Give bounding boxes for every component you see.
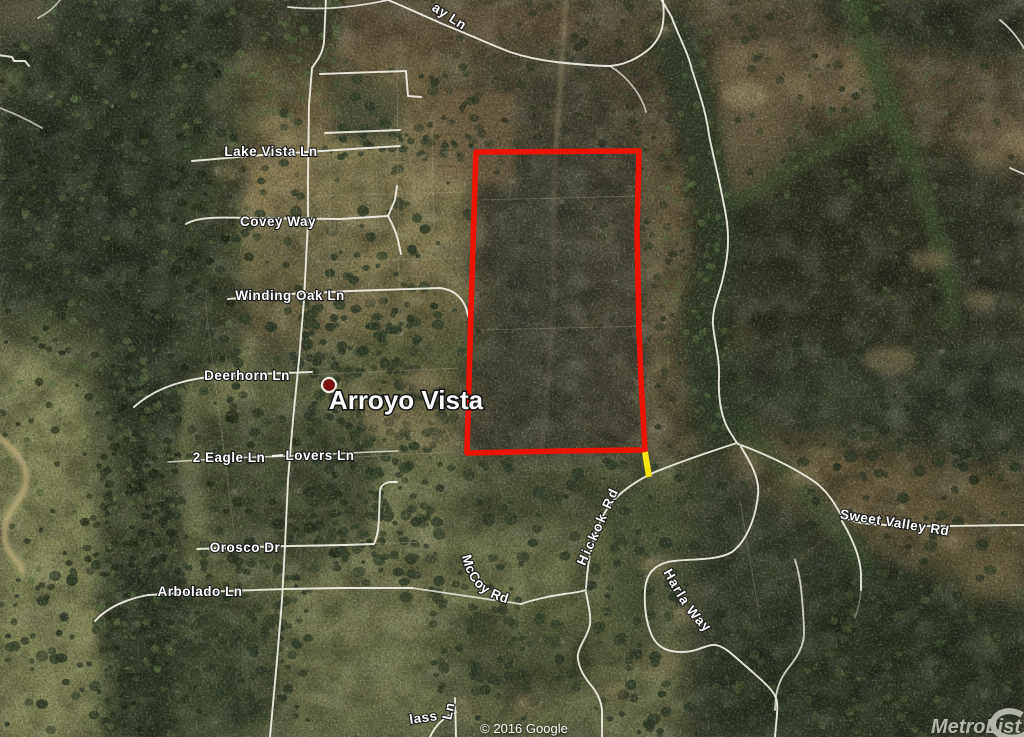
svg-text:MetroList: MetroList xyxy=(931,716,1022,737)
svg-text:Winding Oak Ln: Winding Oak Ln xyxy=(235,288,345,303)
svg-text:Lovers Ln: Lovers Ln xyxy=(285,448,354,463)
svg-text:Arroyo Vista: Arroyo Vista xyxy=(329,385,484,415)
svg-text:2 Eagle Ln: 2 Eagle Ln xyxy=(193,450,266,465)
svg-text:Arbolado Ln: Arbolado Ln xyxy=(158,584,243,599)
svg-text:Deerhorn Ln: Deerhorn Ln xyxy=(204,368,290,383)
svg-text:Lake Vista Ln: Lake Vista Ln xyxy=(224,144,317,159)
svg-text:Orosco Dr: Orosco Dr xyxy=(210,540,281,555)
svg-text:Covey Way: Covey Way xyxy=(240,214,316,229)
svg-text:© 2016 Google: © 2016 Google xyxy=(480,721,568,736)
